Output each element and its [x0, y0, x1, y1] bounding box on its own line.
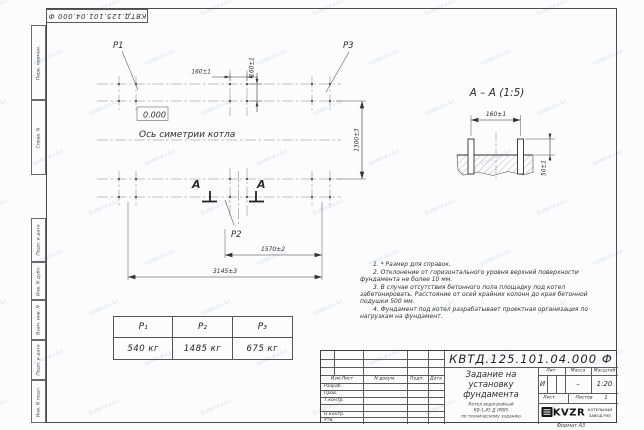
- anchor-bolt-dots: [118, 83, 331, 198]
- margin-strip-sprav-n: Справ. N: [31, 100, 46, 175]
- tb-row-nkontr: Н.контр.: [324, 412, 345, 417]
- tb-line: [538, 403, 618, 404]
- tb-lit-label: Лит.: [546, 369, 557, 374]
- watermark-text: kotel-kv.kz: [0, 398, 8, 417]
- tb-sheets-label: Листов: [575, 396, 592, 401]
- tb-line: [591, 367, 592, 393]
- watermark-text: kotel-kv.kz: [0, 198, 8, 217]
- tb-row-prov: Пров.: [324, 391, 337, 396]
- tb-row-utv: Утв.: [324, 418, 334, 423]
- margin-strip-inv-dubl: Инв. N дубл.: [31, 262, 46, 300]
- dim-1570-value: 1570±2: [261, 246, 285, 253]
- tb-header-n-dokum: N докум.: [374, 377, 395, 382]
- tb-line: [321, 359, 444, 360]
- tb-subtitle-line-1: Котел водогрейный: [468, 403, 513, 408]
- note-1: 1. * Размер для справок.: [360, 262, 612, 269]
- tb-mass-label: Масса: [571, 369, 586, 374]
- loads-header-p2: P₂: [173, 317, 232, 338]
- format-label: Формат А3: [540, 423, 602, 429]
- tb-header-podp: Подп.: [410, 377, 424, 382]
- load-label-p3: P3: [343, 41, 354, 51]
- watermark-text: kotel-kv.kz: [0, 0, 8, 17]
- margin-strip-podp-data-1: Подп. и дата: [31, 218, 46, 262]
- dim-1300-value: 1300±3: [355, 128, 361, 152]
- drawing-sheet: kotel-kv.kzkotel-kv.kzkotel-kv.kzkotel-k…: [0, 0, 644, 430]
- tb-header-data: Дата: [430, 377, 442, 382]
- section-dim-160-value: 160±1: [486, 111, 506, 118]
- section-cut-marks: А А: [191, 178, 266, 202]
- tb-scale-label: Масштаб: [594, 369, 616, 374]
- loads-value-p3: 675 кг: [233, 338, 292, 359]
- tb-line: [444, 367, 618, 368]
- tb-sheets-value: 1: [604, 395, 608, 401]
- plan-centerlines: [97, 70, 341, 226]
- tb-line: [407, 351, 408, 424]
- tb-row-tkontr: Т.контр.: [324, 398, 344, 403]
- margin-strip-vzam-inv: Взам. инв. N: [31, 300, 46, 340]
- loads-value-p1: 540 кг: [114, 338, 173, 359]
- kvzr-caption-line-2: ЗАВОД РЭП: [589, 414, 611, 418]
- watermark-text: kotel-kv.kz: [0, 98, 8, 117]
- tb-title-line-3: фундамента: [463, 389, 518, 399]
- kvzr-caption-line-1: КОТЕЛЬНЫЙ: [588, 408, 612, 412]
- kvzr-logo-text: KVZR: [553, 408, 585, 419]
- loads-header-p3: P₃: [233, 317, 292, 338]
- kvzr-logo-icon: [541, 406, 553, 420]
- flipped-doc-number-stamp: КВТД.125.101.04.000 Ф: [46, 9, 148, 23]
- tb-line: [547, 375, 548, 393]
- tb-line: [321, 417, 444, 418]
- tb-scale-value: 1:20: [597, 380, 613, 388]
- section-letter-left: А: [191, 178, 201, 191]
- note-3: 3. В случае отсутствия бетонного пола пл…: [360, 285, 612, 306]
- tb-line: [538, 375, 618, 376]
- tb-lit-value: И: [540, 380, 545, 388]
- tb-title-line-2: установку: [468, 379, 513, 389]
- title-block: Изм.Лист N докум. Подп. Дата Разраб. Про…: [320, 350, 617, 423]
- tb-title-line-1: Задание на: [466, 369, 517, 379]
- dim-160-v-value: 160±1: [250, 57, 256, 77]
- level-mark: 0.000: [137, 107, 168, 121]
- dim-160-vertical: 160±1: [249, 57, 262, 112]
- dim-3145-value: 3145±3: [213, 268, 237, 275]
- loads-header-p1: P₁: [114, 317, 173, 338]
- tb-line: [363, 351, 364, 424]
- tb-subtitle-line-3: по техническому заданию: [461, 415, 521, 420]
- tb-line: [428, 351, 429, 424]
- tb-header-izm-list: Изм.Лист: [331, 377, 353, 382]
- tb-line: [321, 367, 444, 368]
- watermark-text: kotel-kv.kz: [0, 298, 8, 317]
- note-2: 2. Отклонение от горизонтального уровня …: [360, 270, 612, 284]
- dim-160-horizontal: 160±1: [191, 70, 258, 82]
- tb-line: [538, 393, 618, 394]
- load-label-p2: P2: [231, 230, 242, 240]
- boiler-axis-label: Ось симетрии котла: [139, 130, 235, 140]
- level-value: 0.000: [143, 111, 166, 120]
- tb-line: [556, 375, 557, 393]
- margin-strip-perv-primen: Перв. примен.: [31, 25, 46, 100]
- note-4: 4. Фундамент под котел разрабатывает про…: [360, 307, 612, 321]
- tb-sheet-label: Лист: [543, 396, 555, 401]
- technical-notes: 1. * Размер для справок. 2. Отклонение о…: [360, 262, 612, 322]
- tb-mass-value: –: [576, 380, 580, 388]
- tb-line: [334, 351, 335, 375]
- dim-160-h-value: 160±1: [191, 70, 211, 76]
- flipped-doc-number: КВТД.125.101.04.000 Ф: [48, 12, 146, 20]
- loads-value-p2: 1485 кг: [173, 338, 232, 359]
- section-letter-right: А: [256, 178, 266, 191]
- section-a-a-view: А – А (1:5) 160±1 50±1: [400, 80, 640, 205]
- section-title: А – А (1:5): [469, 87, 525, 99]
- tb-row-razrab: Разраб.: [324, 384, 342, 389]
- load-label-p1: P1: [113, 41, 124, 51]
- margin-strip-podp-data-2: Подп. и дата: [31, 340, 46, 380]
- loads-table: P₁ P₂ P₃ 540 кг 1485 кг 675 кг: [113, 316, 293, 360]
- margin-strip-inv-podl: Инв. N подл.: [31, 380, 46, 423]
- foundation-plan-view: P1 P3 P2 0.000 Ось симетрии котла 160±1 …: [95, 30, 385, 292]
- tb-subtitle-line-2: КВ-1,45 Д (РВР): [474, 409, 509, 414]
- tb-line: [321, 390, 444, 391]
- tb-line: [321, 404, 444, 405]
- tb-line: [568, 393, 569, 403]
- tb-line: [565, 367, 566, 393]
- tb-doc-number: КВТД.125.101.04.000 Ф: [449, 352, 613, 366]
- tb-line: [444, 351, 445, 424]
- section-dim-50-value: 50±1: [542, 160, 548, 176]
